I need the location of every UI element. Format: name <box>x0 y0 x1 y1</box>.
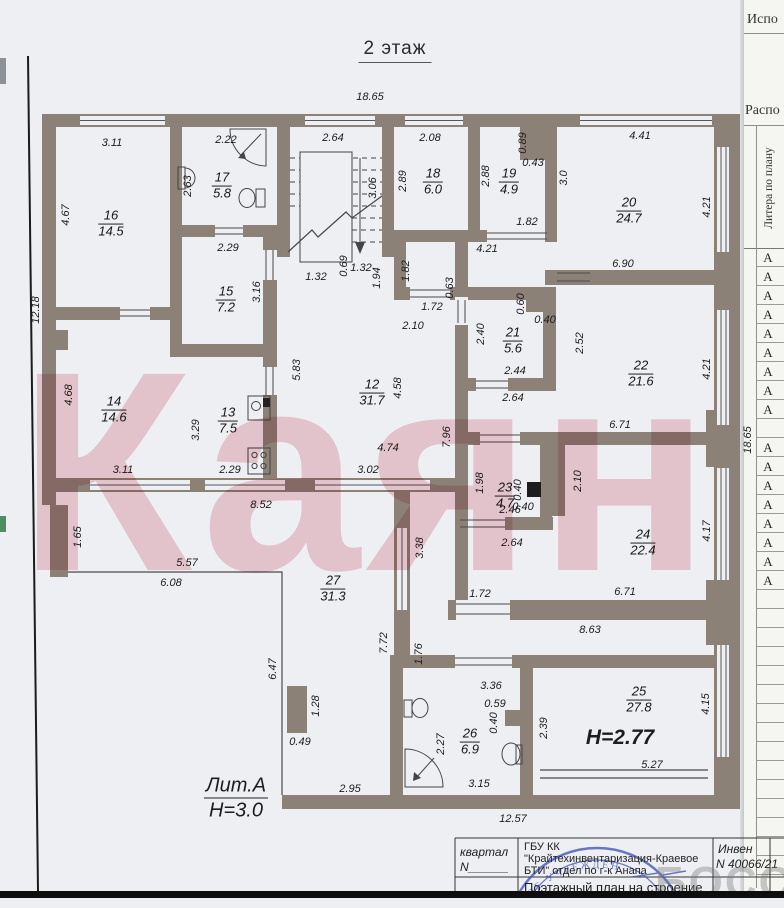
dim-label: 12.18 <box>30 296 42 324</box>
inventory-number: N 40066/21 <box>716 857 778 871</box>
dim-label: 1.82 <box>516 216 537 228</box>
room-label-19: 194.9 <box>499 167 519 198</box>
dim-label: 5.57 <box>176 557 197 569</box>
dim-label: 6.71 <box>609 419 630 431</box>
dim-label: 4.15 <box>700 693 712 714</box>
room-label-13: 137.5 <box>218 406 238 437</box>
quarter-label: квартал <box>460 845 508 859</box>
dim-label: 1.65 <box>72 526 84 547</box>
room-label-18: 186.0 <box>423 167 443 198</box>
dim-label: 1.32 <box>305 271 326 283</box>
quarter-value: N______ <box>460 860 509 874</box>
dim-label: 0.40 <box>534 314 555 326</box>
dim-label: 1.82 <box>400 260 412 281</box>
org-line-3: БТИ" отдел по г-к Анапа <box>524 865 647 877</box>
dim-label: 4.67 <box>60 204 72 225</box>
dim-label: 0.59 <box>484 698 505 710</box>
dim-label: 2.88 <box>480 165 492 186</box>
room-label-22: 2221.6 <box>628 359 653 390</box>
dim-label: 3.38 <box>414 537 426 558</box>
stairs <box>288 152 382 262</box>
dim-label: 0.49 <box>289 736 310 748</box>
inventory-label: Инвен <box>718 842 752 856</box>
scanned-floorplan-page: Испо Распо Литера по плану А А А А А А А… <box>0 0 784 898</box>
dim-label: 4.74 <box>377 442 398 454</box>
room-label-21: 215.6 <box>503 326 523 357</box>
dim-label: 2.27 <box>435 733 447 754</box>
dim-label: 1.72 <box>421 301 442 313</box>
dim-label: 3.29 <box>190 419 202 440</box>
dim-label: 4.21 <box>701 358 713 379</box>
left-page-edge-line <box>28 56 38 891</box>
dim-label: 2.64 <box>502 392 523 404</box>
room-label-24: 2422.4 <box>630 528 655 559</box>
dim-label: 1.98 <box>474 472 486 493</box>
room-label-23: 234.7 <box>495 481 515 512</box>
dim-label: 2.40 <box>475 323 487 344</box>
room-label-15: 157.2 <box>216 285 236 316</box>
dim-label: 3.06 <box>367 177 379 198</box>
dim-label: 6.90 <box>612 258 633 270</box>
dim-label: 1.94 <box>371 267 383 288</box>
dim-label: 4.21 <box>701 196 713 217</box>
dim-label: 2.10 <box>402 320 423 332</box>
dim-label: 3.02 <box>357 464 378 476</box>
dim-label: 2.63 <box>182 175 194 196</box>
dim-label: 4.21 <box>476 243 497 255</box>
dim-label: 0.40 <box>488 712 500 733</box>
dim-label: 7.72 <box>378 632 390 653</box>
sink-icon <box>502 743 520 765</box>
gray-edge-mark <box>0 58 6 84</box>
dim-label: 6.08 <box>160 577 181 589</box>
dim-label: 0.89 <box>517 132 529 153</box>
org-line-1: ГБУ КК <box>524 841 560 853</box>
toilet-icon <box>239 189 255 208</box>
dim-label: 4.68 <box>63 384 75 405</box>
dim-label: 4.17 <box>701 520 713 541</box>
room-label-14: 1414.6 <box>101 395 126 426</box>
dim-label: 0.69 <box>338 255 350 276</box>
dim-label: 2.89 <box>397 170 409 191</box>
toilet-icon <box>404 700 412 717</box>
dim-label: 1.32 <box>350 262 371 274</box>
dim-label: 8.63 <box>579 624 600 636</box>
room-label-25: 2527.8 <box>626 685 651 716</box>
dim-label: 1.72 <box>469 588 490 600</box>
dim-label: 3.11 <box>102 137 123 149</box>
room-23-vent <box>527 482 541 497</box>
dim-label: 0.63 <box>444 277 456 298</box>
dim-label: 2.29 <box>219 464 240 476</box>
dim-label: 2.64 <box>501 537 522 549</box>
dim-label: 18.65 <box>742 426 754 454</box>
room-label-26: 266.9 <box>460 727 480 758</box>
page-bottom-edge <box>0 891 784 898</box>
page-border-lines <box>28 56 38 891</box>
liter-note: Лит.А Н=3.0 <box>204 774 268 823</box>
dim-label: 2.08 <box>419 132 440 144</box>
dim-label: 0.60 <box>515 293 527 314</box>
room-label-27: 2731.3 <box>320 574 345 605</box>
dim-label: 3.16 <box>251 281 263 302</box>
dim-label: 1.28 <box>310 695 322 716</box>
room-label-20: 2024.7 <box>616 196 641 227</box>
room-label-12: 1231.7 <box>359 378 384 409</box>
green-edge-mark <box>0 516 6 532</box>
dim-label: 2.44 <box>504 365 525 377</box>
dim-label: 5.83 <box>291 359 303 380</box>
dim-label: 6.71 <box>614 586 635 598</box>
dim-label: 0.43 <box>522 157 543 169</box>
dim-label: 1.76 <box>413 643 425 664</box>
room-label-17: 175.8 <box>212 171 232 202</box>
dim-label: 7.96 <box>441 426 453 447</box>
org-line-2: "Крайтехинвентаризация-Краевое <box>524 853 698 865</box>
dim-label: 3.36 <box>480 680 501 692</box>
dim-label: 3.15 <box>468 778 489 790</box>
dim-label: 2.29 <box>217 242 238 254</box>
dim-label: 2.22 <box>215 134 236 146</box>
dim-label: 3.11 <box>113 464 134 476</box>
room-25-height-note: Н=2.77 <box>586 726 654 750</box>
dim-label: 3.0 <box>558 170 570 185</box>
dim-label: 2.10 <box>572 470 584 491</box>
floor-title: 2 этаж <box>359 38 432 63</box>
dim-label: 2.39 <box>538 717 550 738</box>
dim-label: 6.47 <box>267 658 279 679</box>
dim-label: 4.41 <box>629 130 650 142</box>
dim-label: 2.52 <box>574 332 586 353</box>
room-label-16: 1614.5 <box>98 209 123 240</box>
dim-label: 18.65 <box>356 91 384 103</box>
dim-label: 5.27 <box>641 759 662 771</box>
dim-label: 2.95 <box>339 783 360 795</box>
dim-label: 12.57 <box>499 813 527 825</box>
dim-label: 4.58 <box>392 377 404 398</box>
dim-label: 2.64 <box>322 132 343 144</box>
dim-label: 8.52 <box>250 499 271 511</box>
